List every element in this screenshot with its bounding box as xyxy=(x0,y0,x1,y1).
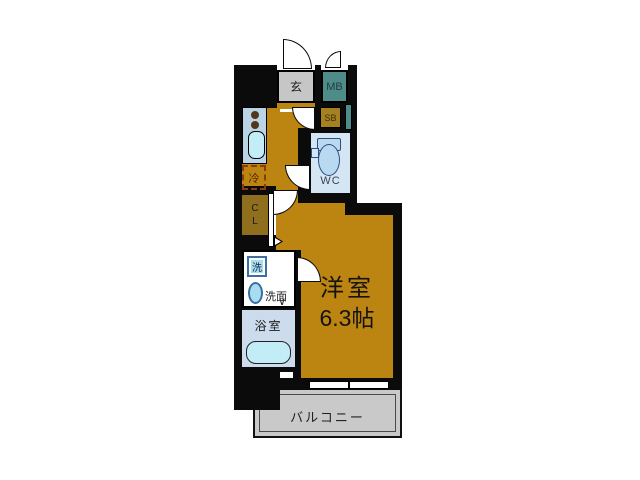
kitchen-sink-icon xyxy=(248,131,265,159)
main-room-floor xyxy=(276,215,393,250)
wall-segment xyxy=(348,65,357,108)
floor-plan: バルコニー 玄 MB SB WC 冷 C L xyxy=(0,0,640,480)
balcony-window xyxy=(309,381,389,389)
entrance-door-arc-icon xyxy=(283,39,312,69)
kitchen-counter xyxy=(242,107,267,164)
shoe-box: SB xyxy=(320,107,341,128)
bathtub-icon xyxy=(246,341,291,364)
closet-label: C xyxy=(242,202,268,215)
washroom: 洗 洗面 xyxy=(242,250,296,308)
closet-label: L xyxy=(242,215,268,228)
toilet-bowl-icon xyxy=(318,144,340,176)
fridge-space: 冷 xyxy=(242,165,266,190)
genkan-label: 玄 xyxy=(290,78,302,95)
shoe-box-label: SB xyxy=(324,113,336,123)
meter-box-label: MB xyxy=(326,81,343,93)
window-tick xyxy=(348,382,350,388)
bathroom: 浴室 xyxy=(242,310,295,367)
pipe-space-strip xyxy=(345,104,352,130)
washing-machine-icon: 洗 xyxy=(247,256,267,277)
wc-label: WC xyxy=(311,175,350,187)
washer-label: 洗 xyxy=(252,259,262,274)
toilet-flush-icon xyxy=(311,148,319,158)
closet: C L xyxy=(242,195,268,235)
room-wc: WC xyxy=(311,133,350,193)
meter-box: MB xyxy=(321,70,348,103)
stove-burner-icon xyxy=(251,121,259,129)
entrance-subdoor-arc-icon xyxy=(325,51,341,68)
main-room-label: 洋室 6.3帖 xyxy=(297,274,397,333)
bath-door-mark: ∨ xyxy=(278,295,286,308)
bathroom-label: 浴室 xyxy=(242,317,295,334)
washstand-sink-icon xyxy=(248,282,263,304)
main-room-size: 6.3帖 xyxy=(297,304,397,333)
stove-burner-icon xyxy=(251,111,259,119)
fridge-label: 冷 xyxy=(249,170,260,186)
room-genkan: 玄 xyxy=(277,70,315,103)
wall-segment xyxy=(234,368,280,410)
